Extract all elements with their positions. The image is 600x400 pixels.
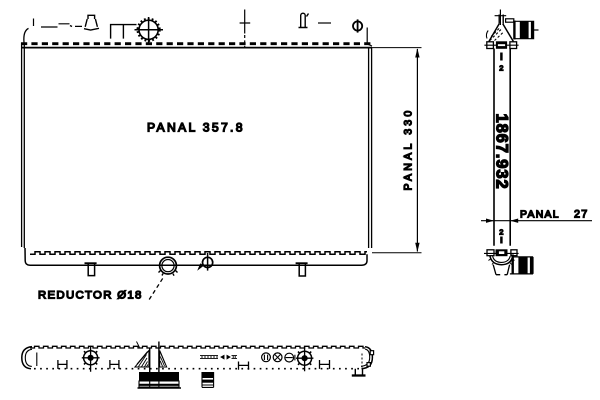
svg-text:2: 2: [499, 228, 503, 237]
svg-text:PANAL 330: PANAL 330: [402, 108, 414, 191]
svg-text:PANAL 357.8: PANAL 357.8: [147, 121, 245, 135]
svg-text:REDUCTOR Ø18: REDUCTOR Ø18: [38, 290, 143, 302]
svg-text:27: 27: [574, 209, 589, 221]
svg-text:PANAL: PANAL: [520, 210, 560, 221]
svg-text:1867.932: 1867.932: [492, 114, 510, 190]
svg-text:2: 2: [499, 64, 503, 73]
